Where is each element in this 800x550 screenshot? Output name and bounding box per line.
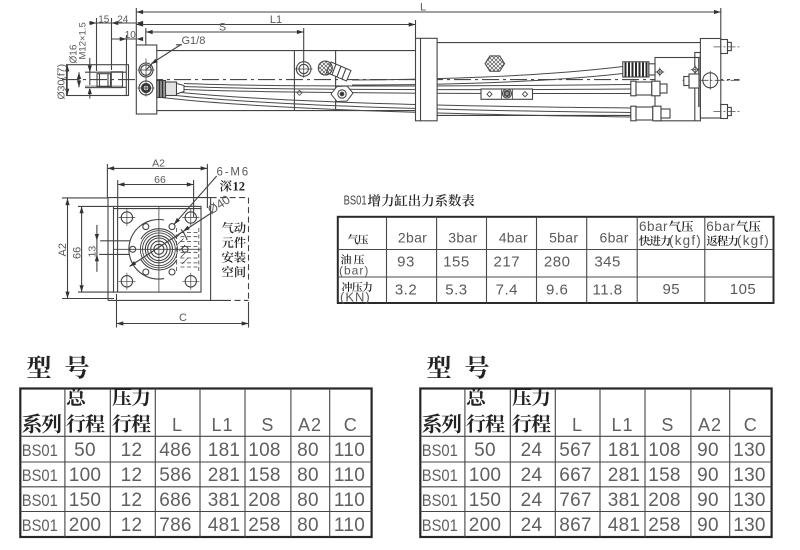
svg-text:A2: A2 xyxy=(298,415,322,435)
svg-text:24: 24 xyxy=(521,515,543,536)
svg-text:BS01: BS01 xyxy=(344,194,367,208)
svg-text:S: S xyxy=(661,415,674,435)
svg-text:6bar: 6bar xyxy=(639,219,668,234)
svg-text:90: 90 xyxy=(697,515,719,536)
svg-text:(kgf): (kgf) xyxy=(669,233,702,248)
svg-text:24: 24 xyxy=(521,490,543,511)
svg-text:Ø30(f7): Ø30(f7) xyxy=(56,64,68,100)
svg-text:155: 155 xyxy=(443,253,470,270)
svg-text:BS01: BS01 xyxy=(22,491,58,510)
svg-text:L1: L1 xyxy=(211,415,233,435)
svg-text:(KN): (KN) xyxy=(340,290,371,305)
svg-text:80: 80 xyxy=(297,490,319,511)
svg-text:BS01: BS01 xyxy=(422,516,458,535)
svg-text:80: 80 xyxy=(297,440,319,461)
svg-text:(kgf): (kgf) xyxy=(737,233,770,248)
svg-text:80: 80 xyxy=(297,465,319,486)
svg-text:90: 90 xyxy=(697,440,719,461)
svg-text:80: 80 xyxy=(297,515,319,536)
svg-text:Ø40: Ø40 xyxy=(205,192,232,217)
svg-text:217: 217 xyxy=(494,253,521,270)
svg-text:L: L xyxy=(572,415,583,435)
svg-text:4bar: 4bar xyxy=(499,230,528,246)
svg-text:(bar): (bar) xyxy=(339,264,369,278)
svg-text:481: 481 xyxy=(608,515,641,536)
svg-text:5.3: 5.3 xyxy=(445,282,467,299)
svg-text:15: 15 xyxy=(98,15,110,26)
svg-text:L: L xyxy=(420,2,426,14)
svg-text:24: 24 xyxy=(117,15,129,26)
svg-text:66: 66 xyxy=(154,174,166,186)
svg-text:280: 280 xyxy=(544,253,571,270)
svg-text:381: 381 xyxy=(208,490,241,511)
svg-text:2bar: 2bar xyxy=(398,230,427,246)
svg-text:BS01: BS01 xyxy=(422,466,458,485)
svg-text:11.8: 11.8 xyxy=(593,282,623,299)
svg-text:12: 12 xyxy=(121,465,143,486)
svg-text:130: 130 xyxy=(733,515,766,536)
svg-text:BS01: BS01 xyxy=(22,466,58,485)
svg-text:24: 24 xyxy=(521,440,543,461)
svg-text:481: 481 xyxy=(208,515,241,536)
svg-text:S: S xyxy=(261,415,274,435)
svg-text:93: 93 xyxy=(397,253,415,270)
svg-text:110: 110 xyxy=(334,465,365,486)
svg-text:6-M6: 6-M6 xyxy=(217,167,250,179)
svg-text:5bar: 5bar xyxy=(549,230,578,246)
svg-text:200: 200 xyxy=(469,515,502,536)
svg-text:L1: L1 xyxy=(611,415,633,435)
svg-text:105: 105 xyxy=(730,281,757,298)
svg-text:50: 50 xyxy=(74,440,96,461)
svg-text:7.4: 7.4 xyxy=(496,282,518,299)
svg-text:A2: A2 xyxy=(152,158,165,170)
svg-text:767: 767 xyxy=(559,490,592,511)
svg-text:13: 13 xyxy=(86,246,98,258)
svg-text:S: S xyxy=(219,22,226,34)
svg-text:BS01: BS01 xyxy=(22,441,58,460)
svg-text:486: 486 xyxy=(159,440,192,461)
svg-text:867: 867 xyxy=(559,515,592,536)
svg-text:M12×1.5: M12×1.5 xyxy=(78,22,89,59)
svg-text:158: 158 xyxy=(248,465,281,486)
svg-text:686: 686 xyxy=(159,490,192,511)
svg-text:281: 281 xyxy=(608,465,641,486)
svg-text:381: 381 xyxy=(608,490,641,511)
svg-text:208: 208 xyxy=(248,490,281,511)
svg-text:258: 258 xyxy=(648,515,681,536)
svg-text:586: 586 xyxy=(159,465,192,486)
svg-text:181: 181 xyxy=(608,440,641,461)
svg-text:281: 281 xyxy=(208,465,241,486)
svg-text:200: 200 xyxy=(69,515,102,536)
svg-text:BS01: BS01 xyxy=(422,441,458,460)
svg-text:90: 90 xyxy=(697,465,719,486)
svg-text:12: 12 xyxy=(121,490,143,511)
svg-text:G1/8: G1/8 xyxy=(182,35,206,47)
svg-text:130: 130 xyxy=(733,465,766,486)
svg-text:786: 786 xyxy=(159,515,192,536)
svg-text:24: 24 xyxy=(521,465,543,486)
svg-text:A2: A2 xyxy=(698,415,722,435)
svg-text:L1: L1 xyxy=(270,14,282,26)
svg-text:110: 110 xyxy=(334,515,365,536)
svg-text:567: 567 xyxy=(559,440,592,461)
svg-text:130: 130 xyxy=(733,440,766,461)
svg-text:100: 100 xyxy=(469,465,502,486)
svg-text:181: 181 xyxy=(208,440,241,461)
svg-text:95: 95 xyxy=(662,281,680,298)
svg-text:345: 345 xyxy=(594,253,621,270)
svg-text:150: 150 xyxy=(69,490,102,511)
svg-text:208: 208 xyxy=(648,490,681,511)
svg-text:BS01: BS01 xyxy=(22,516,58,535)
svg-text:130: 130 xyxy=(733,490,766,511)
svg-text:12: 12 xyxy=(121,515,143,536)
svg-text:9.6: 9.6 xyxy=(546,282,568,299)
svg-text:90: 90 xyxy=(697,490,719,511)
svg-text:108: 108 xyxy=(248,440,281,461)
svg-text:BS01: BS01 xyxy=(422,491,458,510)
svg-text:110: 110 xyxy=(334,490,365,511)
svg-text:C: C xyxy=(744,415,758,435)
svg-text:3bar: 3bar xyxy=(448,230,477,246)
svg-text:258: 258 xyxy=(248,515,281,536)
svg-text:L: L xyxy=(172,415,183,435)
svg-text:3.2: 3.2 xyxy=(395,282,417,299)
svg-text:150: 150 xyxy=(469,490,502,511)
svg-text:6bar: 6bar xyxy=(706,219,735,234)
svg-text:110: 110 xyxy=(334,440,365,461)
svg-text:C: C xyxy=(179,312,187,324)
svg-text:A2: A2 xyxy=(57,243,69,256)
svg-text:66: 66 xyxy=(71,247,83,259)
svg-text:12: 12 xyxy=(121,440,143,461)
svg-text:12: 12 xyxy=(233,180,246,194)
svg-text:10: 10 xyxy=(125,30,137,41)
svg-text:100: 100 xyxy=(69,465,102,486)
svg-text:667: 667 xyxy=(559,465,592,486)
svg-text:108: 108 xyxy=(648,440,681,461)
svg-text:158: 158 xyxy=(648,465,681,486)
svg-text:C: C xyxy=(344,415,358,435)
svg-text:6bar: 6bar xyxy=(599,230,628,246)
svg-text:50: 50 xyxy=(474,440,496,461)
